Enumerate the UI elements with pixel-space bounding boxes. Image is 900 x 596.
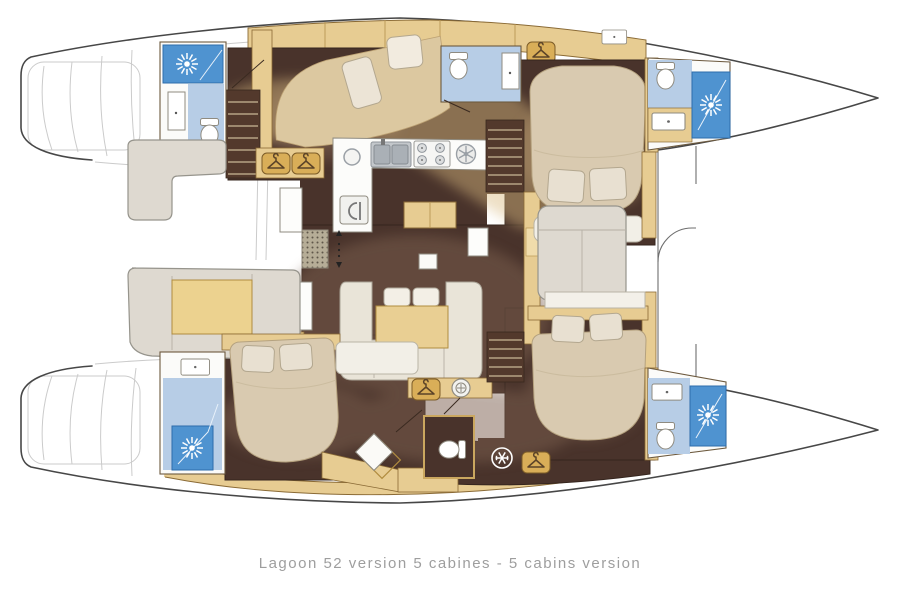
pillow (551, 315, 584, 343)
pillow (241, 345, 274, 373)
cockpit-table (172, 280, 252, 334)
double-bed (532, 330, 646, 440)
wardrobe-hanger-icon (522, 452, 550, 473)
floorplan-page: Lagoon 52 version 5 cabines - 5 cabins v… (0, 0, 900, 596)
bench (336, 342, 418, 374)
sink-icon (652, 113, 685, 130)
round-hatch-icon (457, 145, 476, 164)
washing-machine-icon (452, 379, 470, 397)
round-sink-icon (344, 149, 360, 165)
stairs-icon (486, 120, 524, 192)
cushion (413, 288, 439, 306)
nav-seat (468, 228, 488, 256)
wardrobe-hanger-icon (412, 379, 440, 400)
deck-plan (0, 0, 900, 596)
toilet-icon (439, 441, 466, 459)
cushion (384, 288, 410, 306)
forward-cockpit-door-arc (658, 228, 696, 262)
pillow (589, 313, 623, 341)
stove-icon (414, 141, 450, 167)
grating-icon (302, 230, 328, 268)
stairs-icon (487, 332, 524, 382)
pillow (279, 343, 313, 371)
toilet-icon (657, 423, 675, 450)
sink-icon (602, 30, 627, 44)
forward-cockpit (658, 146, 696, 382)
door (502, 53, 519, 89)
cockpit-bench (128, 140, 226, 220)
wardrobe-hanger-icon (262, 153, 290, 174)
bathroom-port-aft-lower (160, 352, 225, 474)
bathroom-port-aft (160, 42, 226, 152)
toilet-icon (657, 63, 675, 90)
pillow (386, 34, 423, 69)
pouf (419, 254, 437, 269)
pillow (589, 167, 627, 201)
wardrobe-hanger-icon (292, 153, 320, 174)
double-sink-icon (371, 139, 411, 167)
plan-caption: Lagoon 52 version 5 cabines - 5 cabins v… (0, 555, 900, 572)
door (168, 92, 185, 130)
bathroom-starboard-bow (648, 58, 730, 150)
toilet-icon (450, 53, 468, 80)
sink-icon (181, 359, 210, 375)
bathroom-starboard-aft (648, 368, 726, 458)
fridge-icon (340, 196, 368, 224)
shelf (545, 292, 645, 308)
wardrobe-row (408, 378, 492, 400)
bathroom-mid-top (441, 46, 521, 112)
pillow (547, 169, 585, 203)
cabinet (280, 188, 302, 232)
sink-icon (652, 384, 682, 400)
